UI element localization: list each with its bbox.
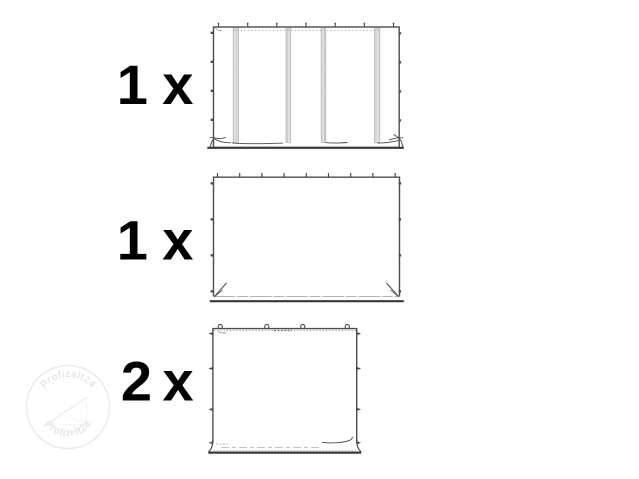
svg-text:1 x: 1 x [117,208,194,271]
svg-text:1 x: 1 x [117,53,194,116]
svg-text:Profizelt24: Profizelt24 [42,419,93,439]
svg-text:2 x: 2 x [121,349,194,412]
svg-text:Profizelt24: Profizelt24 [39,369,98,390]
